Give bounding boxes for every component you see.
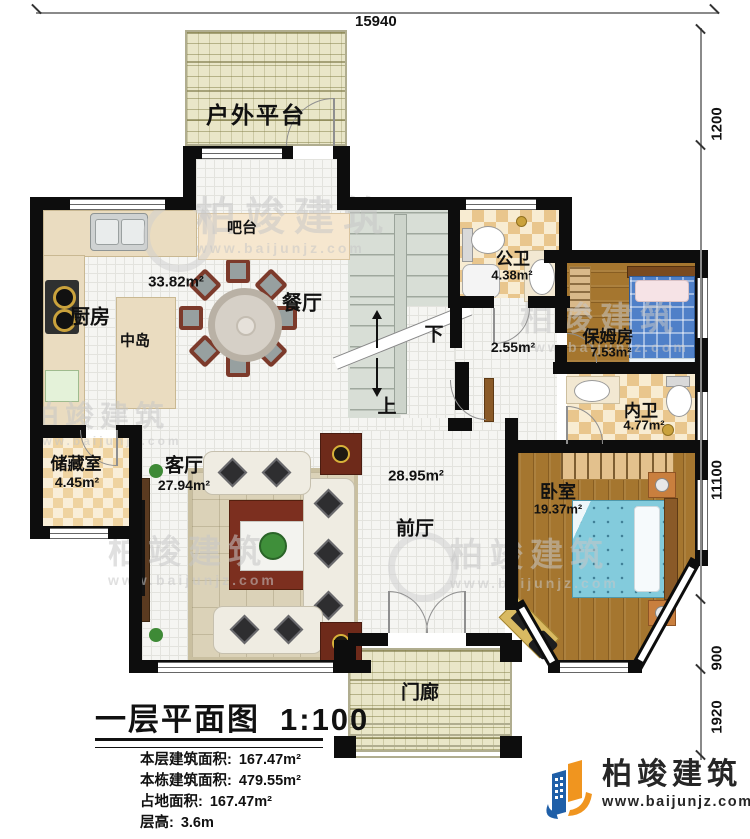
stat-value: 167.47m² <box>210 792 272 813</box>
dimension-right-2: 11100 <box>709 460 726 500</box>
window <box>560 662 628 673</box>
sofa-bottom <box>213 606 323 654</box>
window <box>50 528 108 539</box>
plant <box>149 464 163 478</box>
room-label-porch: 门廊 <box>401 678 439 705</box>
wall-segment <box>448 210 460 298</box>
porch-column <box>334 640 356 662</box>
window <box>697 480 708 550</box>
towel-hook <box>516 216 527 227</box>
sink-basin <box>95 219 119 245</box>
stat-row: 本层建筑面积: 167.47m² <box>140 750 301 771</box>
wall-segment <box>505 418 518 610</box>
stat-row: 本栋建筑面积: 479.55m² <box>140 771 301 792</box>
window <box>202 148 282 159</box>
wall-segment <box>553 362 708 374</box>
sink-basin <box>121 219 145 245</box>
room-label-kitchen: 厨房 <box>70 301 110 330</box>
plant <box>149 628 163 642</box>
watermark: 柏竣建筑 www.baijunjz.com <box>450 538 619 590</box>
porch-column <box>500 640 522 662</box>
sofa-top <box>203 451 311 495</box>
room-label-island: 中岛 <box>120 330 150 351</box>
stairs-label-up: 上 <box>377 392 396 419</box>
area-label-nanny: 7.53m² <box>590 345 631 360</box>
stairs-label-down: 下 <box>424 320 443 347</box>
door-leaf <box>116 430 118 466</box>
plan-stats: 本层建筑面积: 167.47m² 本栋建筑面积: 479.55m² 占地面积: … <box>140 750 301 834</box>
room-label-living: 客厅 <box>165 451 203 478</box>
brand-name: 柏竣建筑 <box>602 758 750 791</box>
window <box>158 662 333 673</box>
watermark-site: www.baijunjz.com <box>196 241 392 256</box>
stat-label: 本层建筑面积: <box>140 750 232 771</box>
decor <box>332 445 350 463</box>
porch-column <box>500 736 522 758</box>
watermark-site: www.baijunjz.com <box>450 576 619 591</box>
dishwasher <box>45 370 79 402</box>
window <box>697 278 708 338</box>
bed-pillow <box>634 506 660 592</box>
table-center <box>236 316 256 336</box>
wall-segment <box>505 440 708 453</box>
stair-stringer <box>394 214 407 414</box>
brand-site: www.baijunjz.com <box>602 794 750 810</box>
window <box>70 199 165 210</box>
area-label-kitchen-dining: 33.82m² <box>148 274 204 291</box>
wall-segment <box>116 425 142 438</box>
wall-segment <box>559 210 572 255</box>
wall-segment <box>129 425 142 673</box>
pillow <box>274 615 304 645</box>
wall-segment <box>544 250 708 263</box>
area-label-foyer: 28.95m² <box>388 468 444 485</box>
pillow <box>262 458 292 488</box>
area-label-inner-bath: 4.77m² <box>623 418 664 433</box>
plan-title: 一层平面图 1:100 <box>95 694 369 739</box>
room-label-bedroom: 卧室 <box>540 478 576 504</box>
wall-segment <box>30 197 43 539</box>
room-label-dining: 餐厅 <box>282 287 322 316</box>
dining-table <box>208 288 282 362</box>
toilet <box>666 385 692 417</box>
stat-label: 层高: <box>140 813 174 834</box>
pillow <box>230 615 260 645</box>
room-label-public-bath: 公卫 <box>496 245 530 270</box>
dimension-right-1: 1200 <box>709 107 726 140</box>
pillow <box>218 458 248 488</box>
area-label-public-bath: 4.38m² <box>491 268 532 283</box>
watermark-brand: 柏竣建筑 <box>450 538 619 573</box>
dimension-right-4: 1920 <box>709 700 726 733</box>
plan-scale: 1:100 <box>280 702 369 738</box>
stat-value: 479.55m² <box>239 771 301 792</box>
stat-row: 层高: 3.6m <box>140 813 301 834</box>
washbasin <box>529 259 555 295</box>
stat-value: 3.6m <box>181 813 214 834</box>
room-label-storage: 储藏室 <box>51 450 102 475</box>
room-label-bar: 吧台 <box>227 217 257 238</box>
pillow <box>314 539 344 569</box>
wall-segment <box>340 197 455 210</box>
nightstand <box>648 472 676 498</box>
wall-segment <box>555 345 567 362</box>
pillow <box>314 489 344 519</box>
wall-segment <box>555 263 567 333</box>
stat-row: 占地面积: 167.47m² <box>140 792 301 813</box>
brand-logo-icon <box>538 758 592 822</box>
wall-segment <box>448 418 472 431</box>
stat-label: 本栋建筑面积: <box>140 771 232 792</box>
title-underline <box>95 738 323 748</box>
brand-logo: 柏竣建筑 www.baijunjz.com <box>538 758 750 822</box>
area-label-hall: 2.55m² <box>491 339 535 355</box>
wall-segment <box>450 296 462 348</box>
window <box>466 199 536 210</box>
brand-text-group: 柏竣建筑 www.baijunjz.com <box>602 758 750 810</box>
porch-column <box>334 736 356 758</box>
kitchen-sink <box>90 213 148 251</box>
plan-title-text: 一层平面图 <box>95 694 260 739</box>
right-dimension-line <box>700 28 702 760</box>
lamp <box>655 478 669 492</box>
area-label-storage: 4.45m² <box>55 474 99 490</box>
dining-chair <box>179 306 203 330</box>
window <box>697 392 708 440</box>
stair-arrow-line <box>376 358 378 388</box>
dimension-top: 15940 <box>355 13 397 30</box>
room-label-outdoor-platform: 户外平台 <box>206 96 306 130</box>
bed-pillow <box>635 280 689 302</box>
kitchen-island <box>116 297 176 409</box>
floor-plan: 15940 1200 11100 900 1920 <box>0 0 750 839</box>
stat-value: 167.47m² <box>239 750 301 771</box>
porch-steps <box>348 714 512 760</box>
stair-arrow-line <box>376 318 378 348</box>
dimension-right-3: 900 <box>709 645 726 670</box>
side-table <box>320 433 362 475</box>
washbasin <box>574 380 610 402</box>
area-label-living: 27.94m² <box>158 477 210 493</box>
stat-label: 占地面积: <box>140 792 203 813</box>
area-label-bedroom: 19.37m² <box>534 502 582 517</box>
dining-chair <box>226 259 250 283</box>
room-label-foyer: 前厅 <box>396 514 434 541</box>
wall-segment <box>30 425 86 438</box>
